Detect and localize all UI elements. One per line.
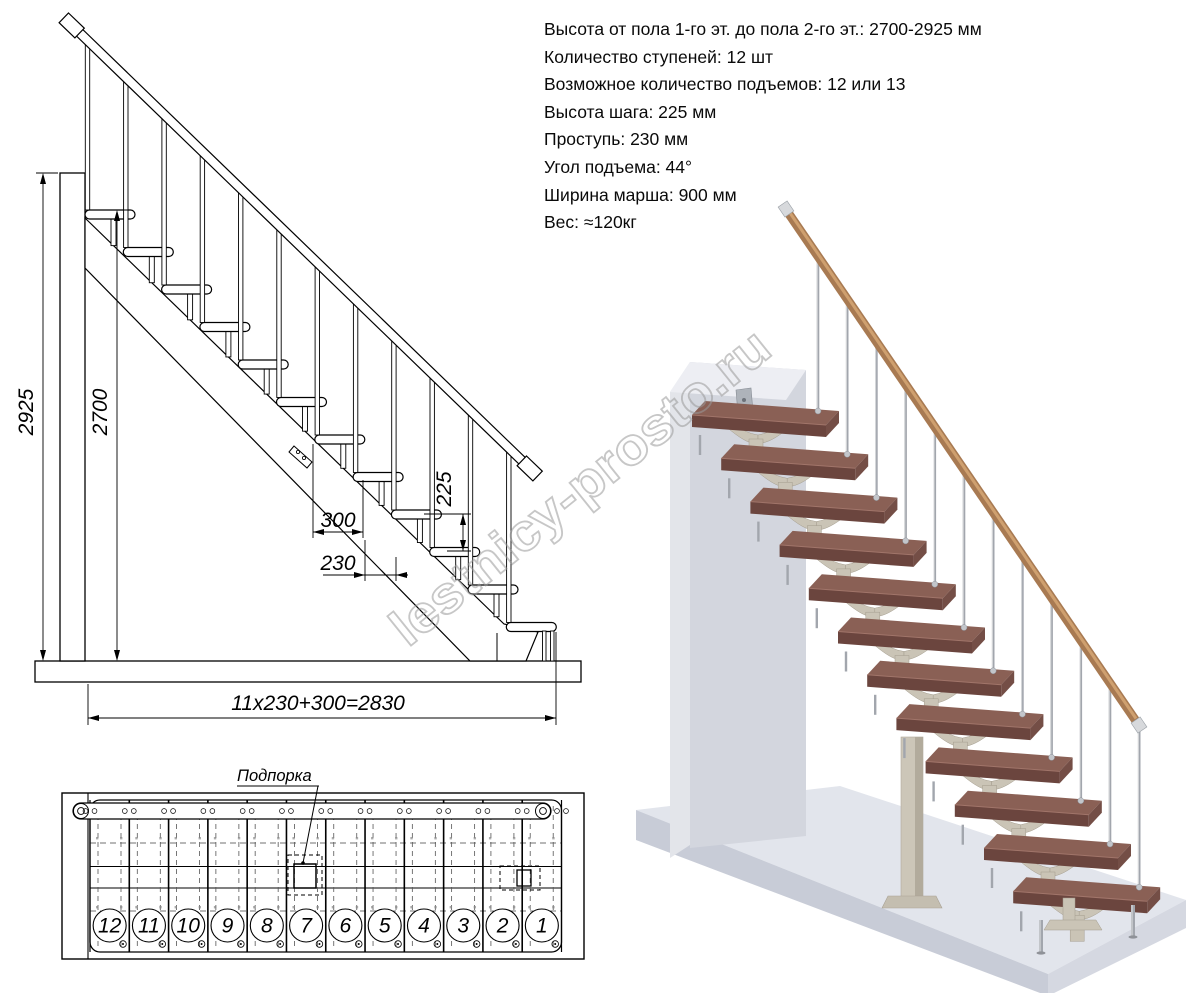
step-number: 5 xyxy=(379,915,391,938)
baluster xyxy=(468,414,472,585)
support-label: Подпорка xyxy=(237,767,312,785)
fastener-mark-icon xyxy=(159,906,161,908)
plan-handrail-end-icon xyxy=(536,804,551,819)
fastener-mark-icon xyxy=(96,906,98,908)
bolt-icon xyxy=(318,943,320,945)
fastener-mark-icon xyxy=(120,837,122,839)
baluster xyxy=(162,117,166,285)
tread-support-post xyxy=(149,257,154,283)
fastener-mark-icon xyxy=(238,837,240,839)
tread-support-post xyxy=(111,219,116,246)
bolt-icon xyxy=(515,943,517,945)
bolt-icon xyxy=(358,943,360,945)
plan-handrail-end-icon xyxy=(74,804,89,819)
fastener-mark-icon xyxy=(450,906,452,908)
fastener-mark-icon xyxy=(450,837,452,839)
fastener-mark-icon xyxy=(513,906,515,908)
dim-total-height-label: 2925 xyxy=(15,388,38,436)
baluster xyxy=(507,451,511,623)
fastener-mark-icon xyxy=(316,837,318,839)
baluster-foot-icon xyxy=(961,625,967,631)
fastener-mark-icon xyxy=(175,837,177,839)
leg-base-icon xyxy=(1129,935,1138,938)
fastener-mark-icon xyxy=(371,837,373,839)
wall-post xyxy=(60,173,85,661)
bolt-icon xyxy=(436,943,438,945)
fastener-mark-icon xyxy=(395,906,397,908)
spec-line-step-count: Количество ступеней: 12 шт xyxy=(544,44,982,72)
render-3d xyxy=(615,180,1191,993)
tread-support-post xyxy=(456,557,461,580)
fastener-mark-icon xyxy=(489,837,491,839)
wall-side-face xyxy=(670,362,690,858)
fastener-mark-icon xyxy=(253,906,255,908)
baluster-foot-icon xyxy=(1136,884,1142,890)
dim-riser-label: 225 xyxy=(433,471,456,507)
fastener-mark-icon xyxy=(135,906,137,908)
baluster xyxy=(124,80,128,247)
fastener-mark-icon xyxy=(199,837,201,839)
fastener-mark-icon xyxy=(528,837,530,839)
fastener-mark-icon xyxy=(277,837,279,839)
step-number: 11 xyxy=(138,915,160,938)
fastener-mark-icon xyxy=(277,906,279,908)
fastener-mark-icon xyxy=(316,906,318,908)
fastener-mark-icon xyxy=(474,906,476,908)
fastener-mark-icon xyxy=(410,837,412,839)
spec-line-height-range: Высота от пола 1-го эт. до пола 2-го эт.… xyxy=(544,16,982,44)
support-post-shade xyxy=(915,737,923,900)
step-number: 7 xyxy=(300,915,313,938)
baluster xyxy=(430,376,434,547)
fastener-mark-icon xyxy=(332,906,334,908)
fastener-mark-icon xyxy=(474,837,476,839)
baluster-foot-icon xyxy=(1107,841,1113,847)
fastener-mark-icon xyxy=(489,906,491,908)
bolt-icon xyxy=(279,943,281,945)
bottom-step-leg xyxy=(551,631,555,661)
step-number: 1 xyxy=(536,915,548,938)
fastener-mark-icon xyxy=(238,906,240,908)
support-leader-dot xyxy=(301,861,305,865)
dim-floor-to-floor-label: 2700 xyxy=(89,388,112,436)
fastener-mark-icon xyxy=(292,837,294,839)
baluster xyxy=(85,43,89,210)
dim-tread-depth-label: 230 xyxy=(319,552,355,575)
support-post-base-plate xyxy=(882,896,942,908)
fastener-mark-icon xyxy=(253,837,255,839)
dim-total-run-label: 11x230+300=2830 xyxy=(231,692,405,715)
bolt-icon xyxy=(122,943,124,945)
baluster-foot-icon xyxy=(932,581,938,587)
baluster xyxy=(353,302,357,472)
leg-base-icon xyxy=(1037,951,1046,954)
fastener-mark-icon xyxy=(434,837,436,839)
baluster-foot-icon xyxy=(873,495,879,501)
fastener-mark-icon xyxy=(292,906,294,908)
tread-support-post xyxy=(264,369,269,394)
floor-slab xyxy=(35,661,581,682)
bolt-icon xyxy=(201,943,203,945)
fastener-mark-icon xyxy=(371,906,373,908)
plan-drawing: 121110987654321 Подпорка xyxy=(30,745,600,993)
dim-top-run-label: 300 xyxy=(320,509,355,532)
fastener-mark-icon xyxy=(214,837,216,839)
fastener-mark-icon xyxy=(214,906,216,908)
elevation-drawing: 2925 2700 225 300 230 11x230+300=2830 xyxy=(0,0,600,745)
fastener-mark-icon xyxy=(434,906,436,908)
tread-support-post xyxy=(379,482,384,506)
baluster-foot-icon xyxy=(1078,798,1084,804)
fastener-mark-icon xyxy=(159,837,161,839)
tread-support-post xyxy=(494,594,499,617)
step-number: 4 xyxy=(418,915,430,938)
fastener-mark-icon xyxy=(199,906,201,908)
spec-line-tread-depth: Проступь: 230 мм xyxy=(544,126,982,154)
bottom-bracket-plate xyxy=(1044,920,1102,930)
baluster xyxy=(200,154,204,322)
baluster-foot-icon xyxy=(903,538,909,544)
tread-support-post xyxy=(226,332,231,357)
step-number: 2 xyxy=(496,915,509,938)
baluster xyxy=(392,339,396,510)
bolt-icon xyxy=(240,943,242,945)
fastener-mark-icon xyxy=(552,837,554,839)
baluster-foot-icon xyxy=(844,451,850,457)
fastener-mark-icon xyxy=(96,837,98,839)
fastener-mark-icon xyxy=(135,837,137,839)
bolt-icon xyxy=(554,943,556,945)
bolt-icon xyxy=(476,943,478,945)
tread xyxy=(506,623,556,632)
fastener-mark-icon xyxy=(513,837,515,839)
step-number: 9 xyxy=(222,915,234,938)
baluster-foot-icon xyxy=(1019,711,1025,717)
bolt-icon xyxy=(397,943,399,945)
fastener-mark-icon xyxy=(410,906,412,908)
fastener-mark-icon xyxy=(356,837,358,839)
fastener-mark-icon xyxy=(528,906,530,908)
baluster-foot-icon xyxy=(1049,754,1055,760)
bottom-bracket-stem xyxy=(1063,898,1075,922)
spec-line-rise-count: Возможное количество подъемов: 12 или 13 xyxy=(544,71,982,99)
tread-support-post xyxy=(417,519,422,543)
tread-support-post xyxy=(188,294,193,320)
baluster-foot-icon xyxy=(990,668,996,674)
step-number: 6 xyxy=(340,915,352,938)
step-number: 12 xyxy=(98,915,122,938)
fastener-mark-icon xyxy=(552,906,554,908)
spec-line-angle: Угол подъема: 44° xyxy=(544,154,982,182)
fastener-mark-icon xyxy=(175,906,177,908)
baluster xyxy=(315,265,319,435)
baluster xyxy=(239,191,243,360)
bolt-icon xyxy=(161,943,163,945)
baluster xyxy=(277,228,281,397)
tread-support-post xyxy=(303,407,308,432)
wall-bracket-hole-icon xyxy=(742,398,746,402)
fastener-mark-icon xyxy=(395,837,397,839)
step-number: 10 xyxy=(177,915,201,938)
step-number: 3 xyxy=(457,915,469,938)
baluster-foot-icon xyxy=(815,408,821,414)
tread-support-post xyxy=(341,444,346,468)
spec-line-rise-height: Высота шага: 225 мм xyxy=(544,99,982,127)
bottom-step-leg xyxy=(543,631,547,661)
step-number: 8 xyxy=(261,915,273,938)
fastener-mark-icon xyxy=(120,906,122,908)
fastener-mark-icon xyxy=(332,837,334,839)
fastener-mark-icon xyxy=(356,906,358,908)
staircase-drawing-sheet: Высота от пола 1-го эт. до пола 2-го эт.… xyxy=(0,0,1191,993)
